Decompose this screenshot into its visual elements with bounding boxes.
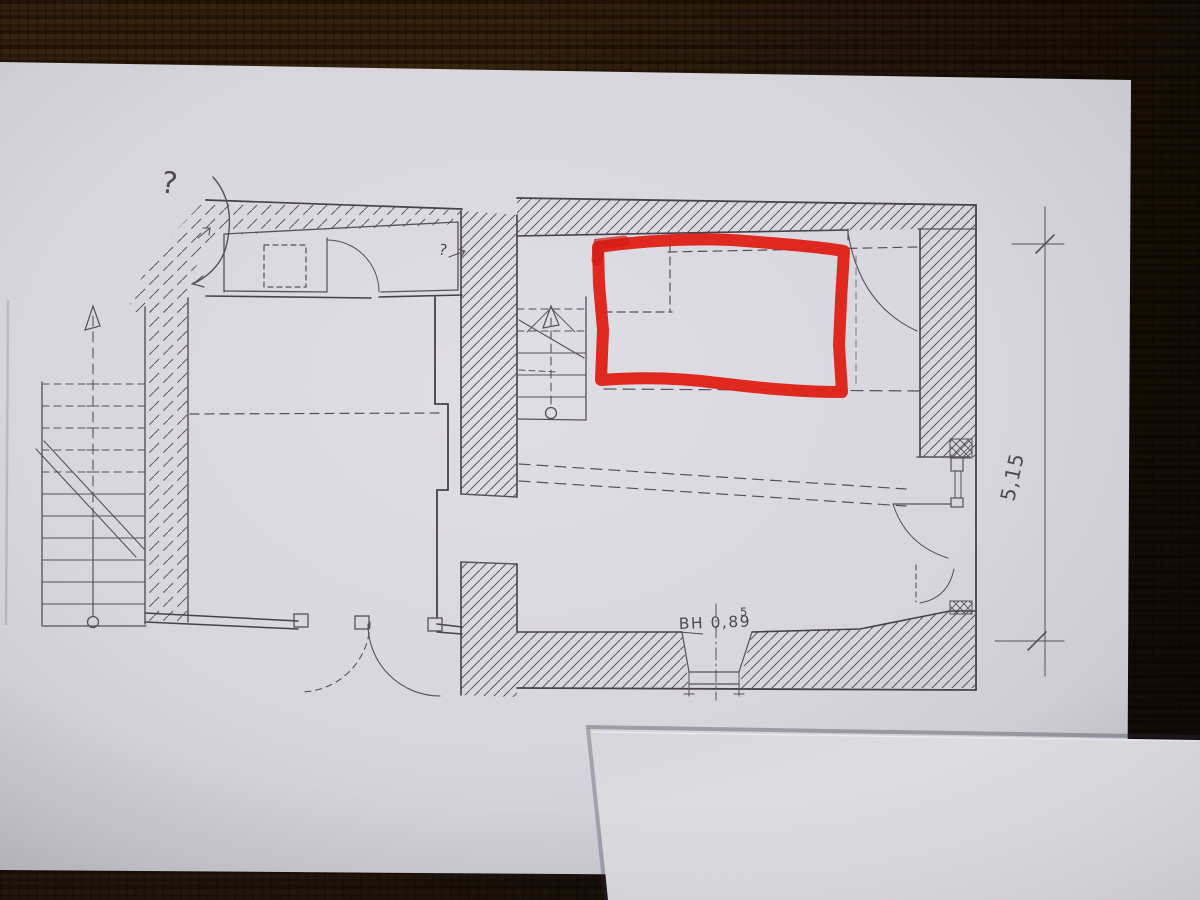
second-paper-sheet [586, 727, 1200, 900]
photo-content: ? ? BH 0,89 5 5,15 [0, 0, 1200, 900]
window-height-superscript: 5 [740, 605, 747, 619]
crosshatched-pier [950, 439, 972, 458]
middle-dividing-wall [461, 211, 517, 697]
left-exterior-wall [145, 298, 188, 624]
photo-scene: ? ? BH 0,89 5 5,15 [0, 0, 1200, 900]
